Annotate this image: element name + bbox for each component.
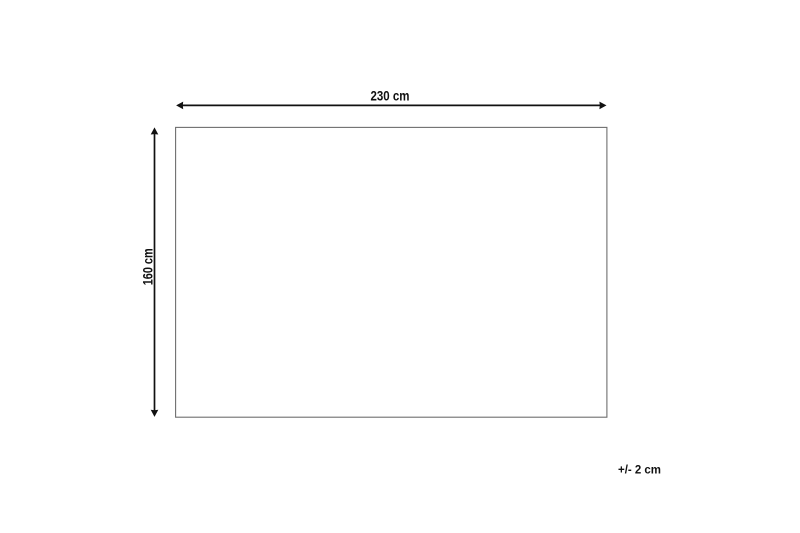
svg-text:230 cm: 230 cm: [371, 87, 410, 103]
svg-text:+/- 2 cm: +/- 2 cm: [618, 462, 661, 476]
svg-text:160 cm: 160 cm: [139, 248, 155, 285]
